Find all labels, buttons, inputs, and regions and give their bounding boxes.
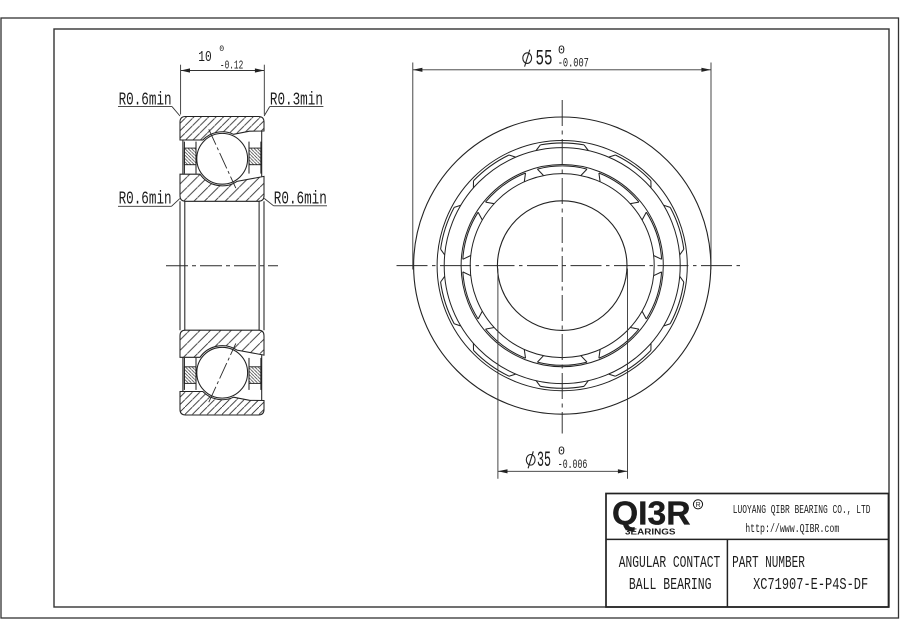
svg-text:R: R (696, 502, 701, 509)
svg-text:0: 0 (558, 43, 565, 57)
svg-text:55: 55 (536, 45, 553, 71)
svg-text:0: 0 (219, 45, 224, 54)
svg-text:10: 10 (198, 49, 211, 66)
svg-text:XC71907-E-P4S-DF: XC71907-E-P4S-DF (753, 575, 868, 594)
svg-text:LUOYANG QIBR BEARING CO., LTD: LUOYANG QIBR BEARING CO., LTD (733, 503, 871, 517)
svg-text:-0.007: -0.007 (558, 56, 589, 70)
svg-text:R0.3min: R0.3min (270, 90, 323, 110)
svg-text:R0.6min: R0.6min (274, 189, 327, 209)
svg-text:BALL BEARING: BALL BEARING (629, 575, 712, 594)
svg-text:R0.6min: R0.6min (119, 90, 172, 110)
svg-text:PART NUMBER: PART NUMBER (732, 553, 805, 572)
svg-text:http://www.QIBR.com: http://www.QIBR.com (745, 522, 839, 536)
svg-text:3EARINGS: 3EARINGS (625, 528, 676, 537)
svg-text:35: 35 (537, 447, 551, 473)
svg-text:ANGULAR CONTACT: ANGULAR CONTACT (619, 553, 721, 572)
svg-text:-0.006: -0.006 (558, 458, 588, 472)
svg-text:-0.12: -0.12 (220, 59, 243, 73)
svg-text:0: 0 (558, 444, 565, 458)
